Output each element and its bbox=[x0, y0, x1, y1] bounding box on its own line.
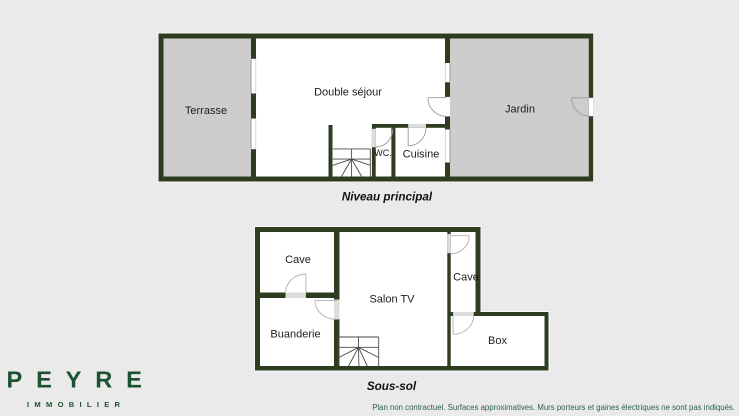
svg-text:Cuisine: Cuisine bbox=[403, 148, 440, 160]
svg-text:Terrasse: Terrasse bbox=[185, 105, 227, 117]
svg-text:Cave: Cave bbox=[453, 272, 479, 284]
svg-text:Box: Box bbox=[488, 335, 507, 347]
svg-text:Niveau principal: Niveau principal bbox=[342, 191, 433, 204]
svg-text:Salon TV: Salon TV bbox=[369, 294, 415, 306]
svg-text:Plan non contractuel. Surfaces: Plan non contractuel. Surfaces approxima… bbox=[372, 403, 735, 412]
svg-text:PEYRE: PEYRE bbox=[7, 367, 156, 393]
svg-text:IMMOBILIER: IMMOBILIER bbox=[27, 400, 125, 409]
svg-text:Cave: Cave bbox=[285, 254, 311, 266]
svg-text:Double séjour: Double séjour bbox=[314, 87, 382, 99]
svg-text:Sous-sol: Sous-sol bbox=[367, 380, 417, 393]
svg-text:WC.: WC. bbox=[374, 148, 392, 158]
svg-text:Buanderie: Buanderie bbox=[270, 328, 320, 340]
svg-text:Jardin: Jardin bbox=[505, 104, 535, 116]
